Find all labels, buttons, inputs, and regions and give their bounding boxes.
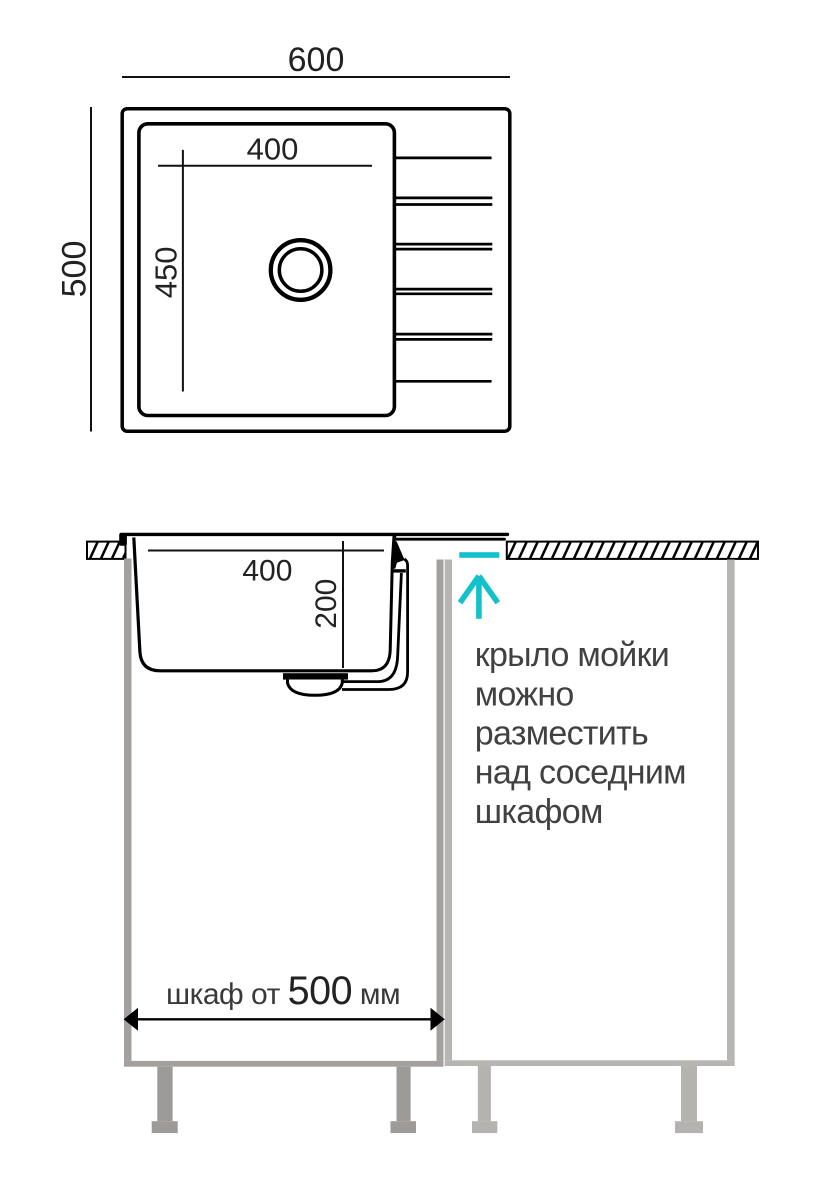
svg-text:можно: можно [475, 675, 574, 713]
svg-text:разместить: разместить [475, 715, 648, 753]
svg-text:400: 400 [242, 555, 292, 588]
svg-text:400: 400 [247, 132, 299, 167]
svg-text:600: 600 [288, 41, 345, 79]
svg-text:500: 500 [56, 241, 94, 298]
svg-text:шкаф от 500 мм: шкаф от 500 мм [166, 969, 400, 1013]
svg-text:200: 200 [310, 579, 343, 629]
svg-text:шкафом: шкафом [475, 793, 603, 831]
svg-text:450: 450 [149, 247, 184, 299]
svg-text:над соседним: над соседним [475, 754, 686, 792]
svg-text:крыло мойки: крыло мойки [475, 636, 669, 674]
